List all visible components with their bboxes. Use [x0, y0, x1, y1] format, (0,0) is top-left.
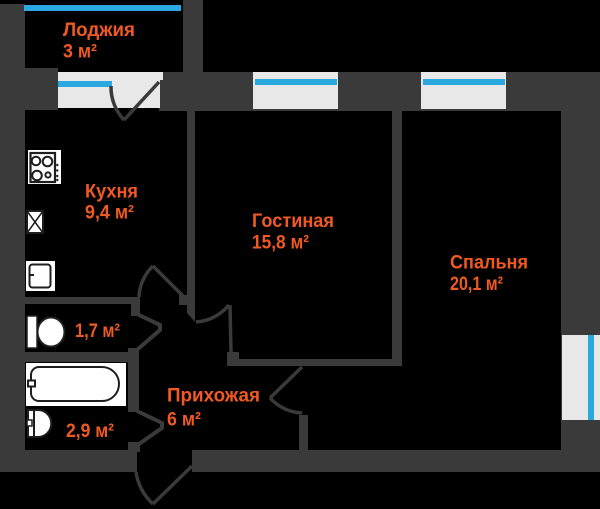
svg-text:Спальня: Спальня — [450, 253, 528, 274]
svg-text:15,8 м²: 15,8 м² — [252, 233, 309, 254]
svg-text:Лоджия: Лоджия — [63, 20, 135, 41]
svg-text:6 м²: 6 м² — [167, 410, 201, 431]
svg-text:1,7 м²: 1,7 м² — [75, 321, 120, 342]
svg-text:9,4 м²: 9,4 м² — [85, 203, 134, 224]
svg-text:Прихожая: Прихожая — [167, 386, 260, 407]
svg-text:2,9 м²: 2,9 м² — [66, 421, 114, 442]
svg-text:20,1 м²: 20,1 м² — [450, 274, 503, 295]
svg-text:Гостиная: Гостиная — [252, 211, 334, 232]
svg-text:3 м²: 3 м² — [63, 42, 97, 63]
svg-text:Кухня: Кухня — [85, 182, 138, 203]
